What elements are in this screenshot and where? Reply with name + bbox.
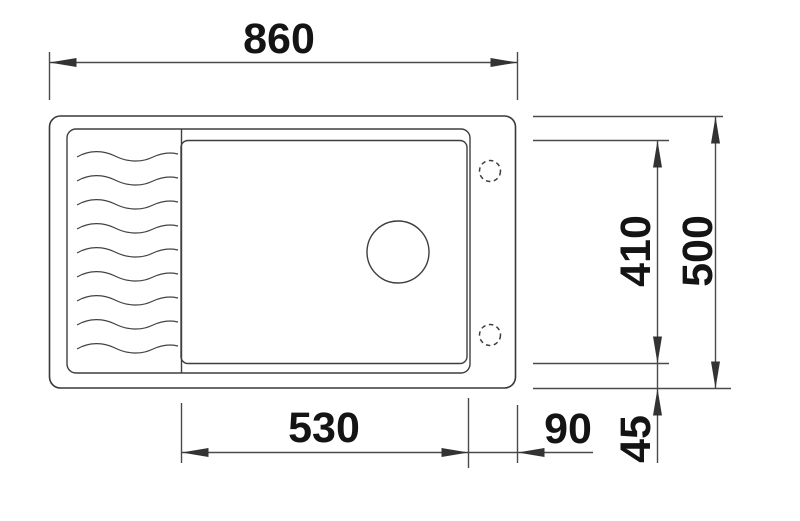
arrowhead-left-icon (518, 448, 545, 457)
wave-line (77, 272, 178, 281)
tap-hole-bottom (480, 325, 501, 346)
arrowhead-left-icon (182, 448, 209, 457)
wave-line (77, 224, 178, 233)
wave-line (77, 296, 178, 305)
dim-label-overall-depth: 500 (674, 215, 722, 287)
technical-drawing-canvas: 860 530 90 410 500 45 (0, 0, 800, 521)
sink-outline (50, 116, 516, 388)
wave-line (77, 176, 178, 185)
arrowhead-down-icon (711, 362, 720, 389)
wave-line (77, 344, 178, 353)
drain-hole (367, 221, 429, 283)
tap-hole-top (480, 161, 501, 182)
bowl-edge (181, 141, 467, 364)
dim-label-bowl-to-bottom: 45 (612, 415, 660, 463)
arrowhead-right-icon (442, 448, 469, 457)
arrowhead-right-icon (491, 58, 518, 67)
dim-label-overall-width: 860 (243, 15, 315, 63)
arrowhead-down-icon (653, 337, 662, 364)
dim-label-bowl-to-edge: 90 (544, 405, 592, 453)
sink-dimension-drawing: 860 530 90 410 500 45 (0, 0, 800, 521)
wave-line (77, 248, 178, 257)
drainboard-waves (77, 152, 178, 353)
arrowhead-left-icon (50, 58, 77, 67)
wave-line (77, 152, 178, 161)
arrowhead-up-icon (653, 389, 662, 416)
dim-label-bowl-depth: 410 (612, 215, 660, 287)
sink-rim-edge (67, 129, 470, 373)
arrowhead-up-icon (653, 141, 662, 168)
dimension-labels: 860 530 90 410 500 45 (243, 15, 722, 463)
wave-line (77, 200, 178, 209)
wave-line (77, 320, 178, 329)
sink-outer-edge (50, 116, 516, 388)
arrowhead-up-icon (711, 117, 720, 144)
dim-label-bowl-width: 530 (288, 404, 360, 452)
